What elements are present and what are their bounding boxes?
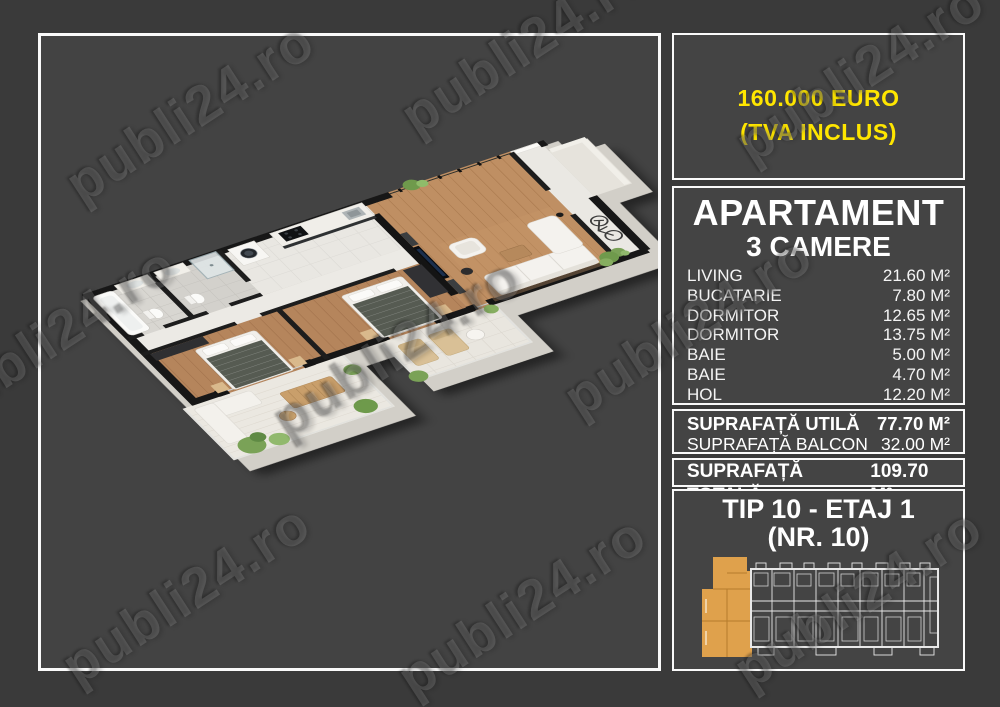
surface-balcon-value: 32.00 M²: [881, 434, 950, 454]
room-row: LIVING 21.60 M²: [674, 266, 963, 286]
room-row: BUCATARIE 7.80 M²: [674, 286, 963, 306]
floorplan-panel: [38, 33, 661, 671]
room-label: DORMITOR: [687, 306, 779, 326]
room-area: 5.00 M²: [892, 345, 950, 365]
apartment-panel: APARTAMENT 3 CAMERE LIVING 21.60 M² BUCA…: [672, 186, 965, 405]
room-area: 12.20 M²: [883, 385, 950, 405]
room-row: BAIE 4.70 M²: [674, 365, 963, 385]
room-label: BAIE: [687, 345, 726, 365]
unit-type-panel: TIP 10 - ETAJ 1 (NR. 10): [672, 489, 965, 671]
room-label: LIVING: [687, 266, 743, 286]
room-row: DORMITOR 12.65 M²: [674, 306, 963, 326]
room-row: DORMITOR 13.75 M²: [674, 325, 963, 345]
unit-type-line2: (NR. 10): [674, 523, 963, 551]
listing-flyer: 160.000 EURO (TVA INCLUS) APARTAMENT 3 C…: [0, 0, 1000, 707]
price-amount: 160.000 EURO: [674, 81, 963, 115]
surface-utila-value: 77.70 M²: [877, 413, 950, 434]
room-label: DORMITOR: [687, 325, 779, 345]
total-surface-panel: SUPRAFAȚĂ TOTALĂ 109.70 M²: [672, 458, 965, 487]
apartment-title: APARTAMENT: [674, 194, 963, 232]
floorplan-3d-render: [41, 36, 658, 668]
room-label: HOL: [687, 385, 722, 405]
room-area: 12.65 M²: [883, 306, 950, 326]
room-label: BAIE: [687, 365, 726, 385]
room-row: HOL 12.20 M²: [674, 385, 963, 405]
apartment-subtitle: 3 CAMERE: [674, 232, 963, 262]
surface-balcon-label: SUPRAFAȚĂ BALCON: [687, 434, 868, 454]
price-vat-note: (TVA INCLUS): [674, 115, 963, 149]
room-list: LIVING 21.60 M² BUCATARIE 7.80 M² DORMIT…: [674, 266, 963, 405]
floorplate-mini-plan: [694, 553, 944, 665]
room-label: BUCATARIE: [687, 286, 782, 306]
highlighted-unit: [702, 557, 752, 657]
room-row: BAIE 5.00 M²: [674, 345, 963, 365]
building-outline: [751, 563, 938, 655]
price-panel: 160.000 EURO (TVA INCLUS): [672, 33, 965, 180]
surface-utila-label: SUPRAFAȚĂ UTILĂ: [687, 413, 860, 434]
room-area: 21.60 M²: [883, 266, 950, 286]
room-area: 13.75 M²: [883, 325, 950, 345]
room-area: 7.80 M²: [892, 286, 950, 306]
unit-type-line1: TIP 10 - ETAJ 1: [674, 495, 963, 523]
room-area: 4.70 M²: [892, 365, 950, 385]
surface-panel: SUPRAFAȚĂ UTILĂ 77.70 M² SUPRAFAȚĂ BALCO…: [672, 409, 965, 454]
